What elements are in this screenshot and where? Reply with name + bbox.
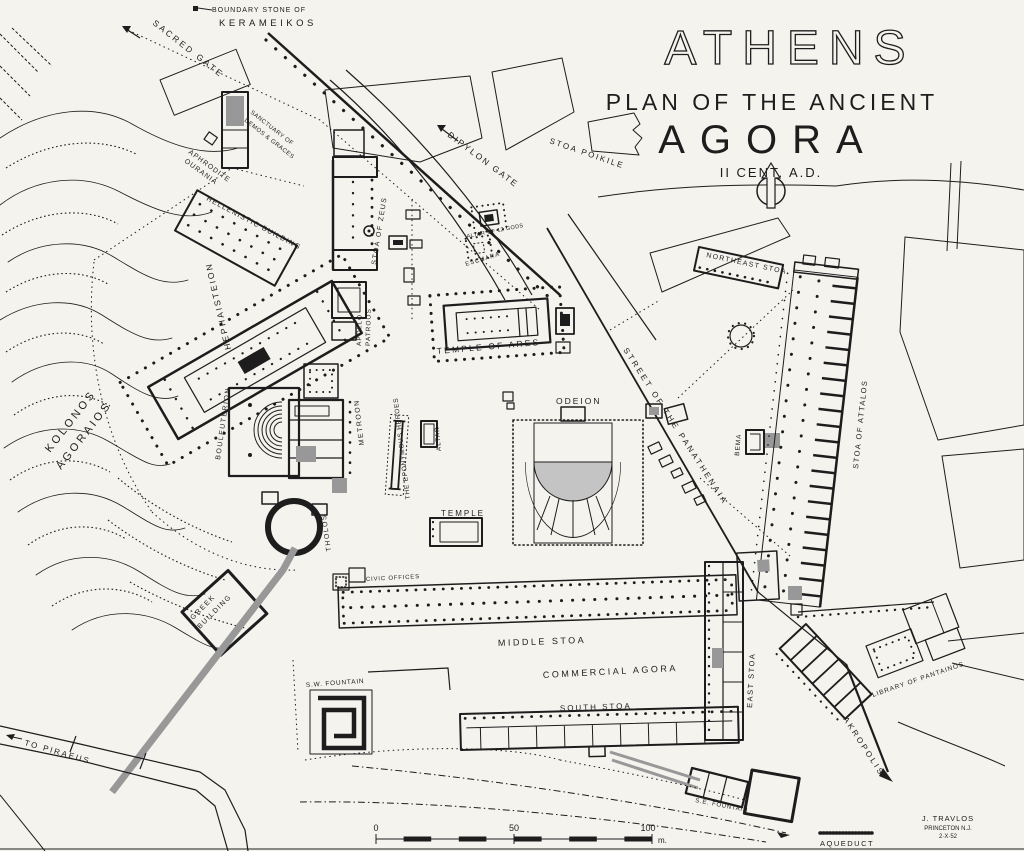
- agora-map-page: 0 50 100 m. ATHENS PLAN OF THE ANCIENT A…: [0, 0, 1024, 851]
- title-subtitle: PLAN OF THE ANCIENT: [606, 89, 938, 115]
- credit-place: PRINCETON N.J.: [924, 826, 972, 832]
- scale-hundred: 100: [640, 823, 655, 833]
- credit-author: J. TRAVLOS: [922, 814, 974, 823]
- label-boundary-stone: BOUNDARY STONE OF: [212, 7, 306, 14]
- scale-unit: m.: [658, 836, 667, 845]
- scale-zero: 0: [373, 823, 378, 833]
- label-apollo: APOLLO: [356, 314, 364, 346]
- label-kerameikos: KERAMEIKOS: [219, 18, 317, 29]
- map-canvas: 0 50 100 m. ATHENS PLAN OF THE ANCIENT A…: [0, 0, 1024, 851]
- scale-fifty: 50: [509, 823, 519, 833]
- boundary-stone-marker: [193, 6, 198, 11]
- label-temple: TEMPLE: [441, 509, 485, 518]
- label-aqueduct: AQUEDUCT: [820, 839, 874, 848]
- label-odeion: ODEION: [556, 396, 602, 406]
- title-city: ATHENS: [664, 22, 915, 75]
- title-period: II CENT. A.D.: [720, 165, 823, 180]
- credit-date: 2·X·52: [939, 834, 958, 840]
- title-name: AGORA: [658, 118, 877, 162]
- label-patroos: PATROOS: [365, 308, 373, 346]
